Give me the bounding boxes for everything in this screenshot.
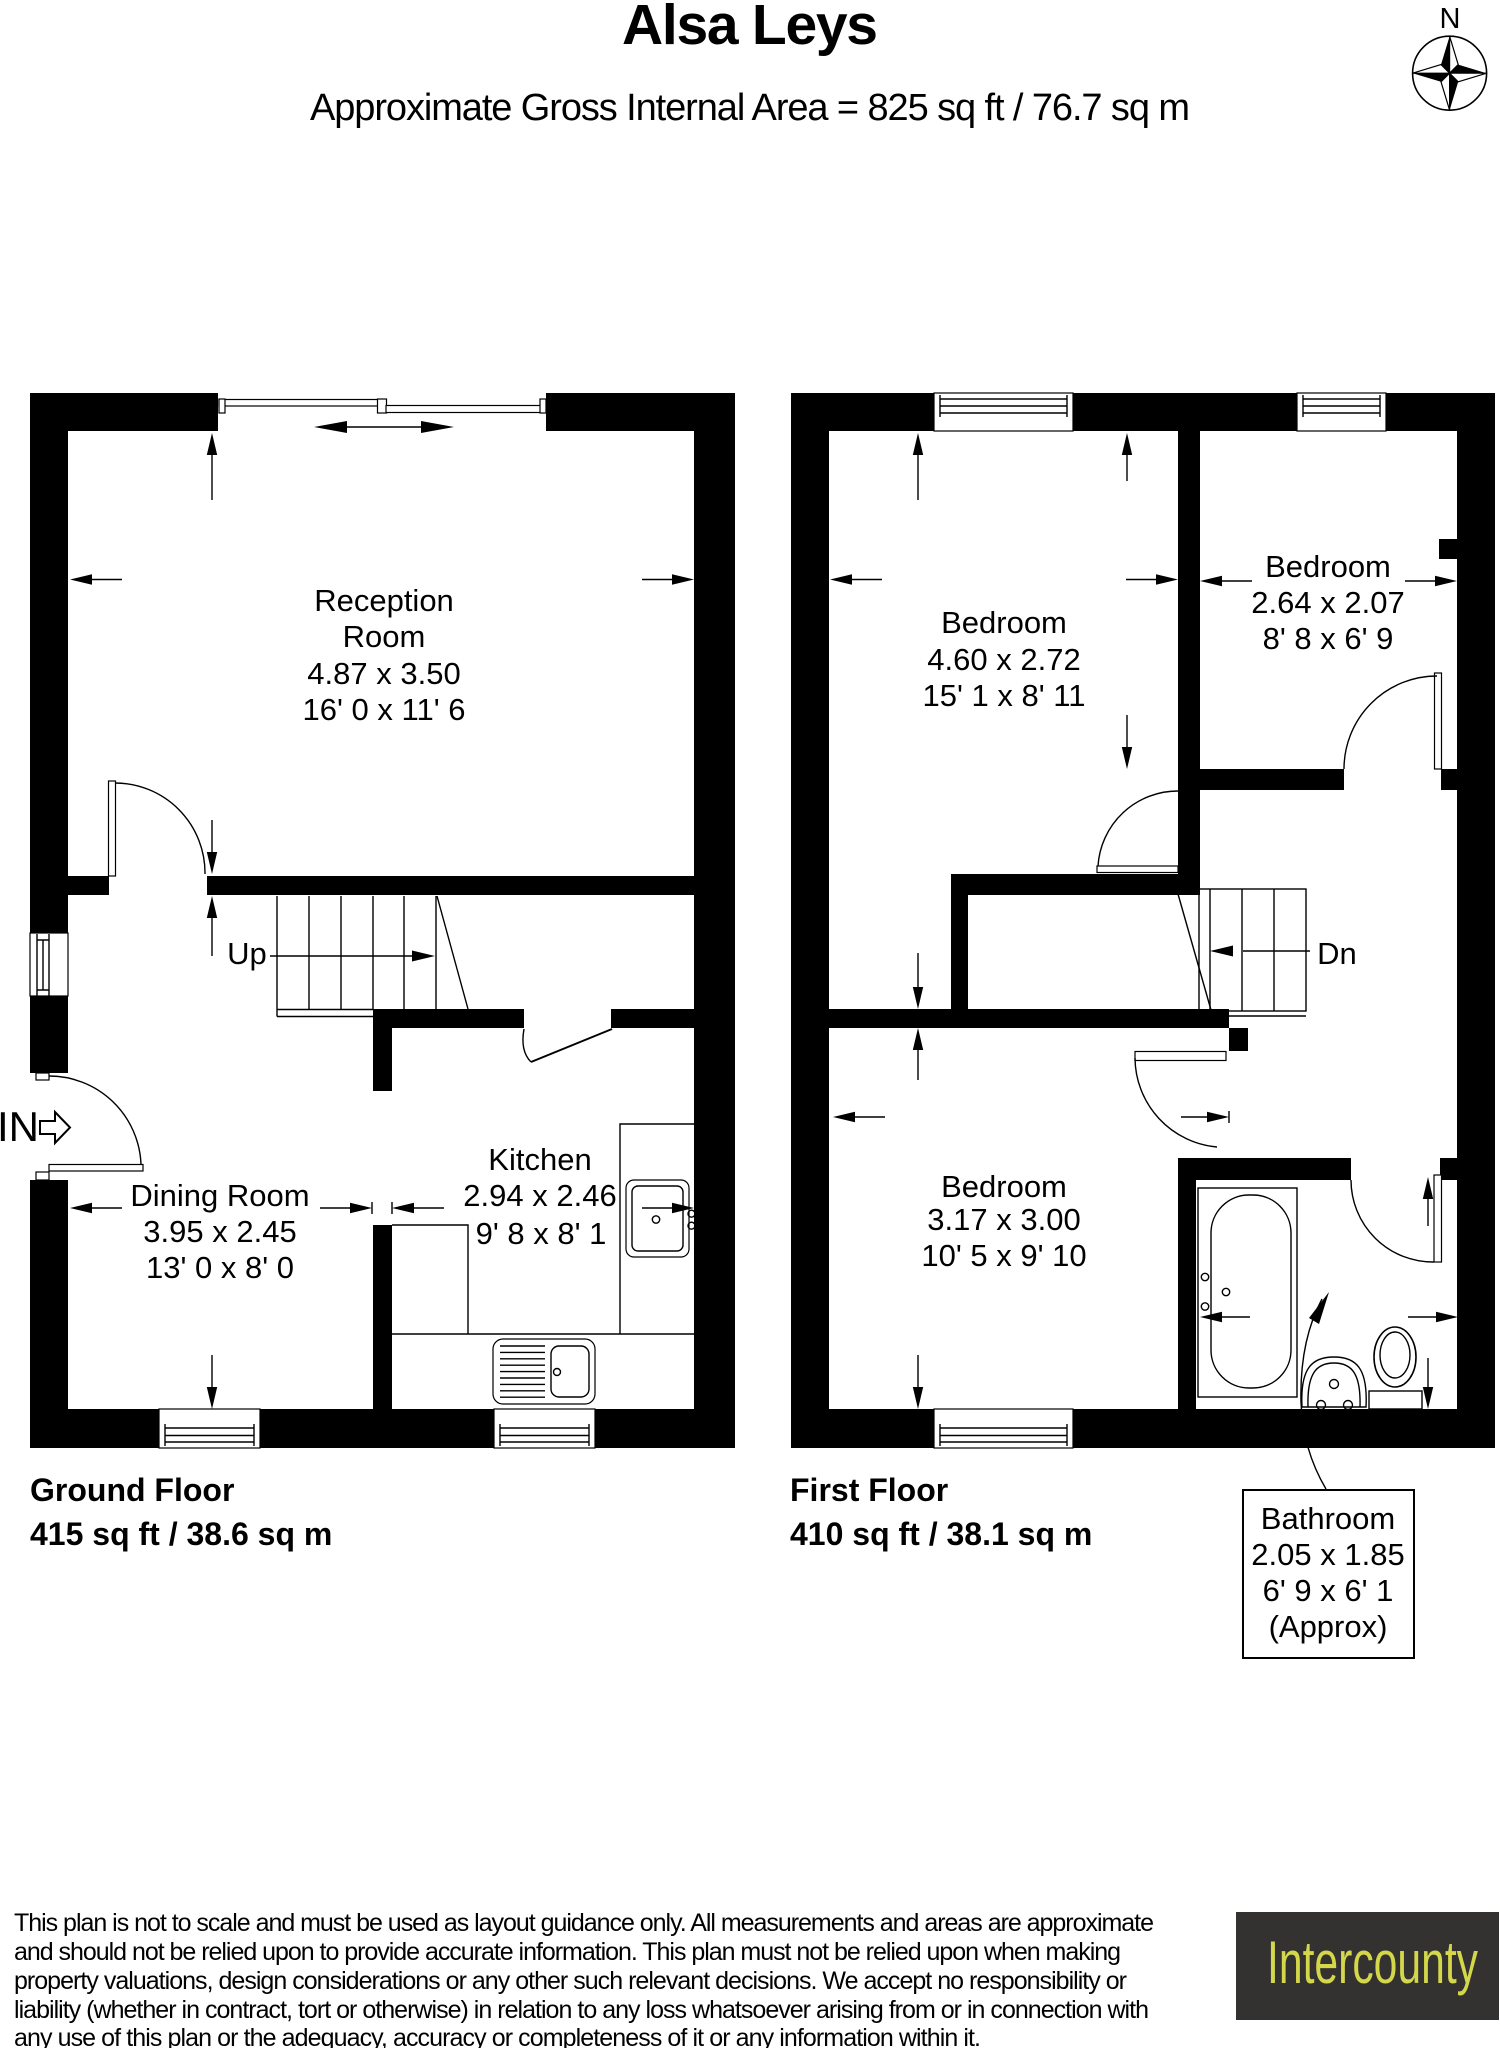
svg-text:4.60 x 2.72: 4.60 x 2.72 (927, 642, 1080, 677)
svg-text:N: N (1440, 3, 1461, 35)
svg-text:Bathroom: Bathroom (1261, 1501, 1395, 1536)
svg-text:Room: Room (343, 619, 426, 654)
svg-text:3.17 x 3.00: 3.17 x 3.00 (927, 1202, 1080, 1237)
svg-text:any use of this plan or the ad: any use of this plan or the adequacy, ac… (14, 2024, 981, 2048)
svg-text:6' 9 x 6' 1: 6' 9 x 6' 1 (1263, 1573, 1394, 1608)
svg-text:9' 8 x 8' 1: 9' 8 x 8' 1 (476, 1216, 607, 1251)
svg-text:Bedroom: Bedroom (1265, 549, 1391, 584)
svg-text:First Floor: First Floor (790, 1472, 948, 1508)
svg-text:Approximate Gross Internal Are: Approximate Gross Internal Area = 825 sq… (310, 87, 1190, 129)
svg-text:Kitchen: Kitchen (488, 1142, 591, 1177)
svg-text:2.94 x 2.46: 2.94 x 2.46 (463, 1178, 616, 1213)
svg-text:415 sq ft / 38.6 sq m: 415 sq ft / 38.6 sq m (30, 1516, 332, 1552)
svg-text:Up: Up (227, 936, 267, 971)
svg-text:Bedroom: Bedroom (941, 1169, 1067, 1204)
svg-text:and should not be relied upon: and should not be relied upon to provide… (14, 1938, 1121, 1966)
svg-text:Dining Room: Dining Room (130, 1178, 309, 1213)
svg-text:15' 1 x 8' 11: 15' 1 x 8' 11 (923, 678, 1086, 713)
svg-text:Dn: Dn (1317, 936, 1357, 971)
svg-text:410 sq ft / 38.1 sq m: 410 sq ft / 38.1 sq m (790, 1516, 1092, 1552)
svg-text:16' 0 x 11' 6: 16' 0 x 11' 6 (303, 692, 466, 727)
svg-text:2.64 x 2.07: 2.64 x 2.07 (1251, 585, 1404, 620)
svg-text:Bedroom: Bedroom (941, 605, 1067, 640)
svg-text:liability (whether in contract: liability (whether in contract, tort or … (14, 1996, 1149, 2024)
svg-text:13' 0 x 8' 0: 13' 0 x 8' 0 (146, 1250, 294, 1285)
svg-text:Reception: Reception (314, 583, 454, 618)
svg-text:10' 5 x 9' 10: 10' 5 x 9' 10 (921, 1238, 1086, 1273)
svg-text:8' 8 x 6' 9: 8' 8 x 6' 9 (1263, 621, 1394, 656)
svg-text:Intercounty: Intercounty (1267, 1929, 1478, 1996)
svg-text:property valuations, design co: property valuations, design consideratio… (14, 1967, 1127, 1995)
svg-text:3.95 x 2.45: 3.95 x 2.45 (143, 1214, 296, 1249)
svg-text:This plan is not to scale and: This plan is not to scale and must be us… (14, 1909, 1154, 1937)
svg-text:(Approx): (Approx) (1269, 1609, 1388, 1644)
svg-text:4.87 x 3.50: 4.87 x 3.50 (307, 656, 460, 691)
svg-text:2.05 x 1.85: 2.05 x 1.85 (1251, 1537, 1404, 1572)
svg-text:Ground Floor: Ground Floor (30, 1472, 234, 1508)
svg-text:IN: IN (0, 1103, 39, 1150)
svg-text:Alsa Leys: Alsa Leys (622, 0, 878, 57)
